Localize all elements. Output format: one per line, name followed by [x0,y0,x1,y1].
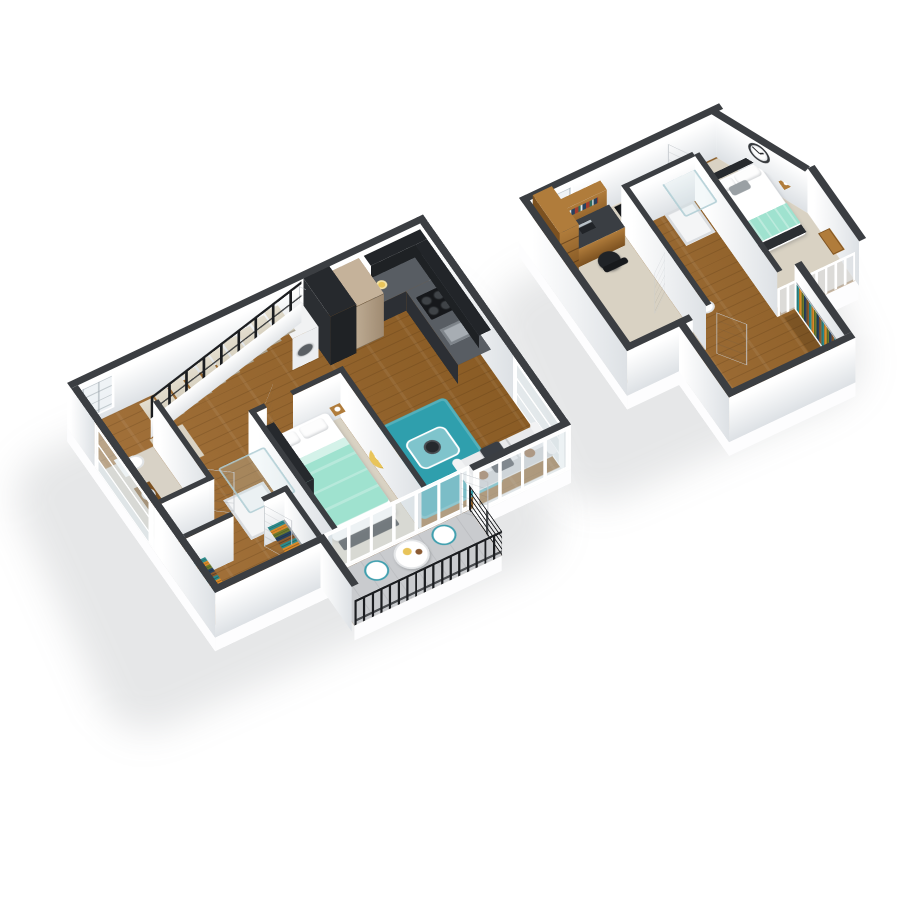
floorplan-scene [0,0,900,900]
